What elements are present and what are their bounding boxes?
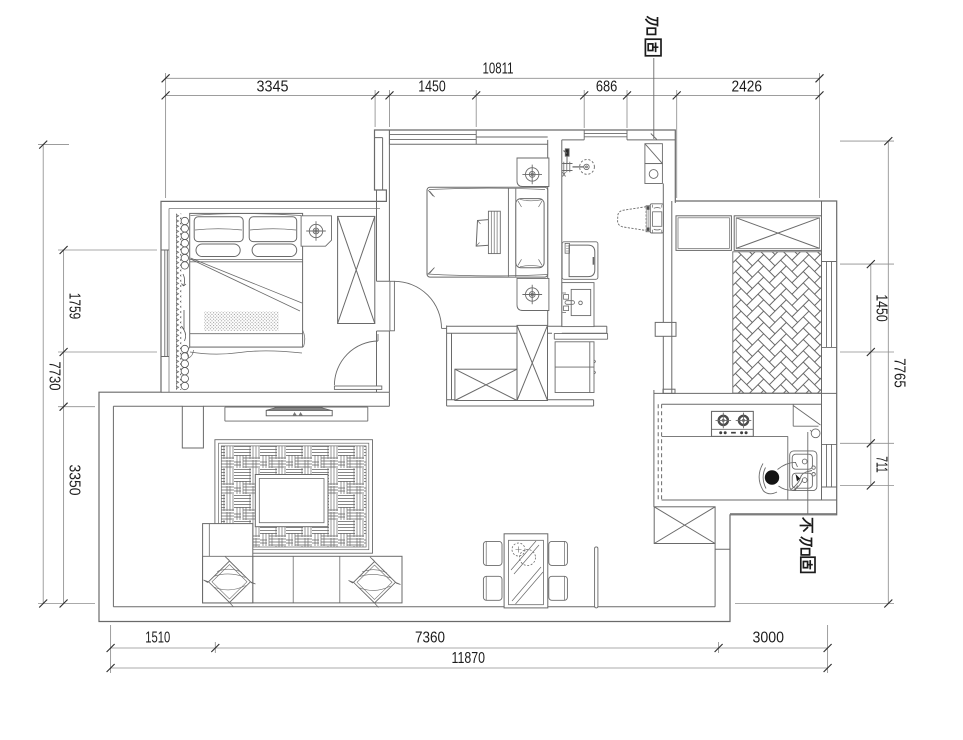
svg-text:1510: 1510 <box>145 630 170 647</box>
svg-text:1450: 1450 <box>873 294 890 322</box>
svg-text:3000: 3000 <box>753 630 785 647</box>
svg-text:10811: 10811 <box>483 61 514 78</box>
svg-text:2426: 2426 <box>732 78 763 95</box>
svg-text:1450: 1450 <box>418 78 446 95</box>
svg-text:11870: 11870 <box>452 650 486 667</box>
svg-text:1759: 1759 <box>66 293 83 320</box>
svg-text:3345: 3345 <box>257 78 289 95</box>
svg-text:3350: 3350 <box>66 465 83 496</box>
svg-text:7730: 7730 <box>46 362 63 391</box>
svg-text:7360: 7360 <box>415 630 445 647</box>
svg-text:711: 711 <box>873 456 890 473</box>
svg-text:7765: 7765 <box>891 358 908 388</box>
svg-text:686: 686 <box>596 78 618 95</box>
